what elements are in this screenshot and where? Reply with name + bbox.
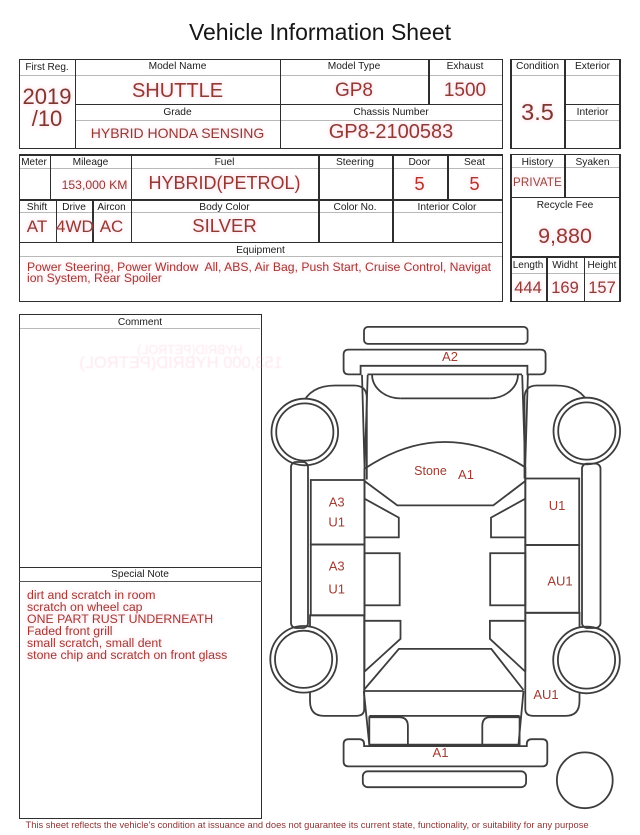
svg-text:U1: U1 bbox=[328, 582, 345, 597]
svg-text:A2: A2 bbox=[442, 349, 458, 364]
svg-text:U1: U1 bbox=[549, 498, 566, 513]
svg-text:A1: A1 bbox=[433, 745, 449, 760]
svg-text:A1: A1 bbox=[458, 467, 474, 482]
svg-text:AU1: AU1 bbox=[547, 574, 572, 589]
svg-text:Stone: Stone bbox=[414, 464, 447, 478]
svg-text:A3: A3 bbox=[329, 559, 345, 574]
svg-text:AU1: AU1 bbox=[533, 687, 558, 702]
svg-text:A3: A3 bbox=[329, 495, 345, 510]
svg-text:U1: U1 bbox=[328, 515, 345, 530]
